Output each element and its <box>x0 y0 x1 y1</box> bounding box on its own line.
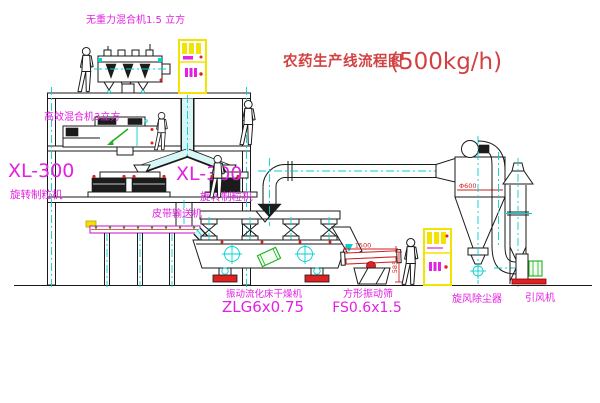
label-granulator-left-name: 旋转制粒机 <box>10 188 63 201</box>
process-flow-diagram: 1500 585 Φ600 <box>0 0 600 403</box>
dryer-spring-mounts <box>201 217 337 243</box>
induced-draft-fan <box>512 254 546 284</box>
label-screen-model: FS0.6x1.5 <box>332 300 402 316</box>
dim-screen-length: 1500 <box>355 242 372 250</box>
flow-diagram-canvas: 1500 585 Φ600 <box>0 0 600 403</box>
control-cabinet-top <box>179 40 206 93</box>
diagram-title: 农药生产线流程图 <box>282 52 403 70</box>
label-belt-conveyor: 皮带输送机 <box>152 207 202 220</box>
gravity-free-mixer <box>94 44 170 93</box>
fluid-bed-dryer <box>193 211 347 282</box>
control-cabinet-ground <box>424 229 451 285</box>
dim-screen-height: 585 <box>391 261 399 273</box>
dryer-feet <box>213 268 329 282</box>
label-screen-name: 方形振动筛 <box>343 287 393 300</box>
person-figure-5 <box>402 239 418 285</box>
label-high-efficiency-mixer: 高效混合机3立方 <box>44 110 120 123</box>
label-granulator-left-model: XL-300 <box>8 160 74 182</box>
label-granulator-center-name: 旋转制粒机 <box>200 190 253 203</box>
label-cyclone: 旋风除尘器 <box>452 292 502 305</box>
label-granulator-center-model: XL-300 <box>176 163 242 185</box>
label-dryer-model: ZLG6x0.75 <box>222 298 304 316</box>
square-vibrating-screen: 1500 585 <box>341 242 402 285</box>
rotary-granulator-left <box>88 165 170 197</box>
person-figure-1 <box>78 47 93 91</box>
dim-cyclone-diameter: Φ600 <box>459 182 477 190</box>
label-gravity-free-mixer: 无重力混合机1.5 立方 <box>86 13 185 26</box>
label-fan: 引风机 <box>525 291 555 304</box>
diagram-title-capacity: (500kg/h) <box>390 49 502 75</box>
